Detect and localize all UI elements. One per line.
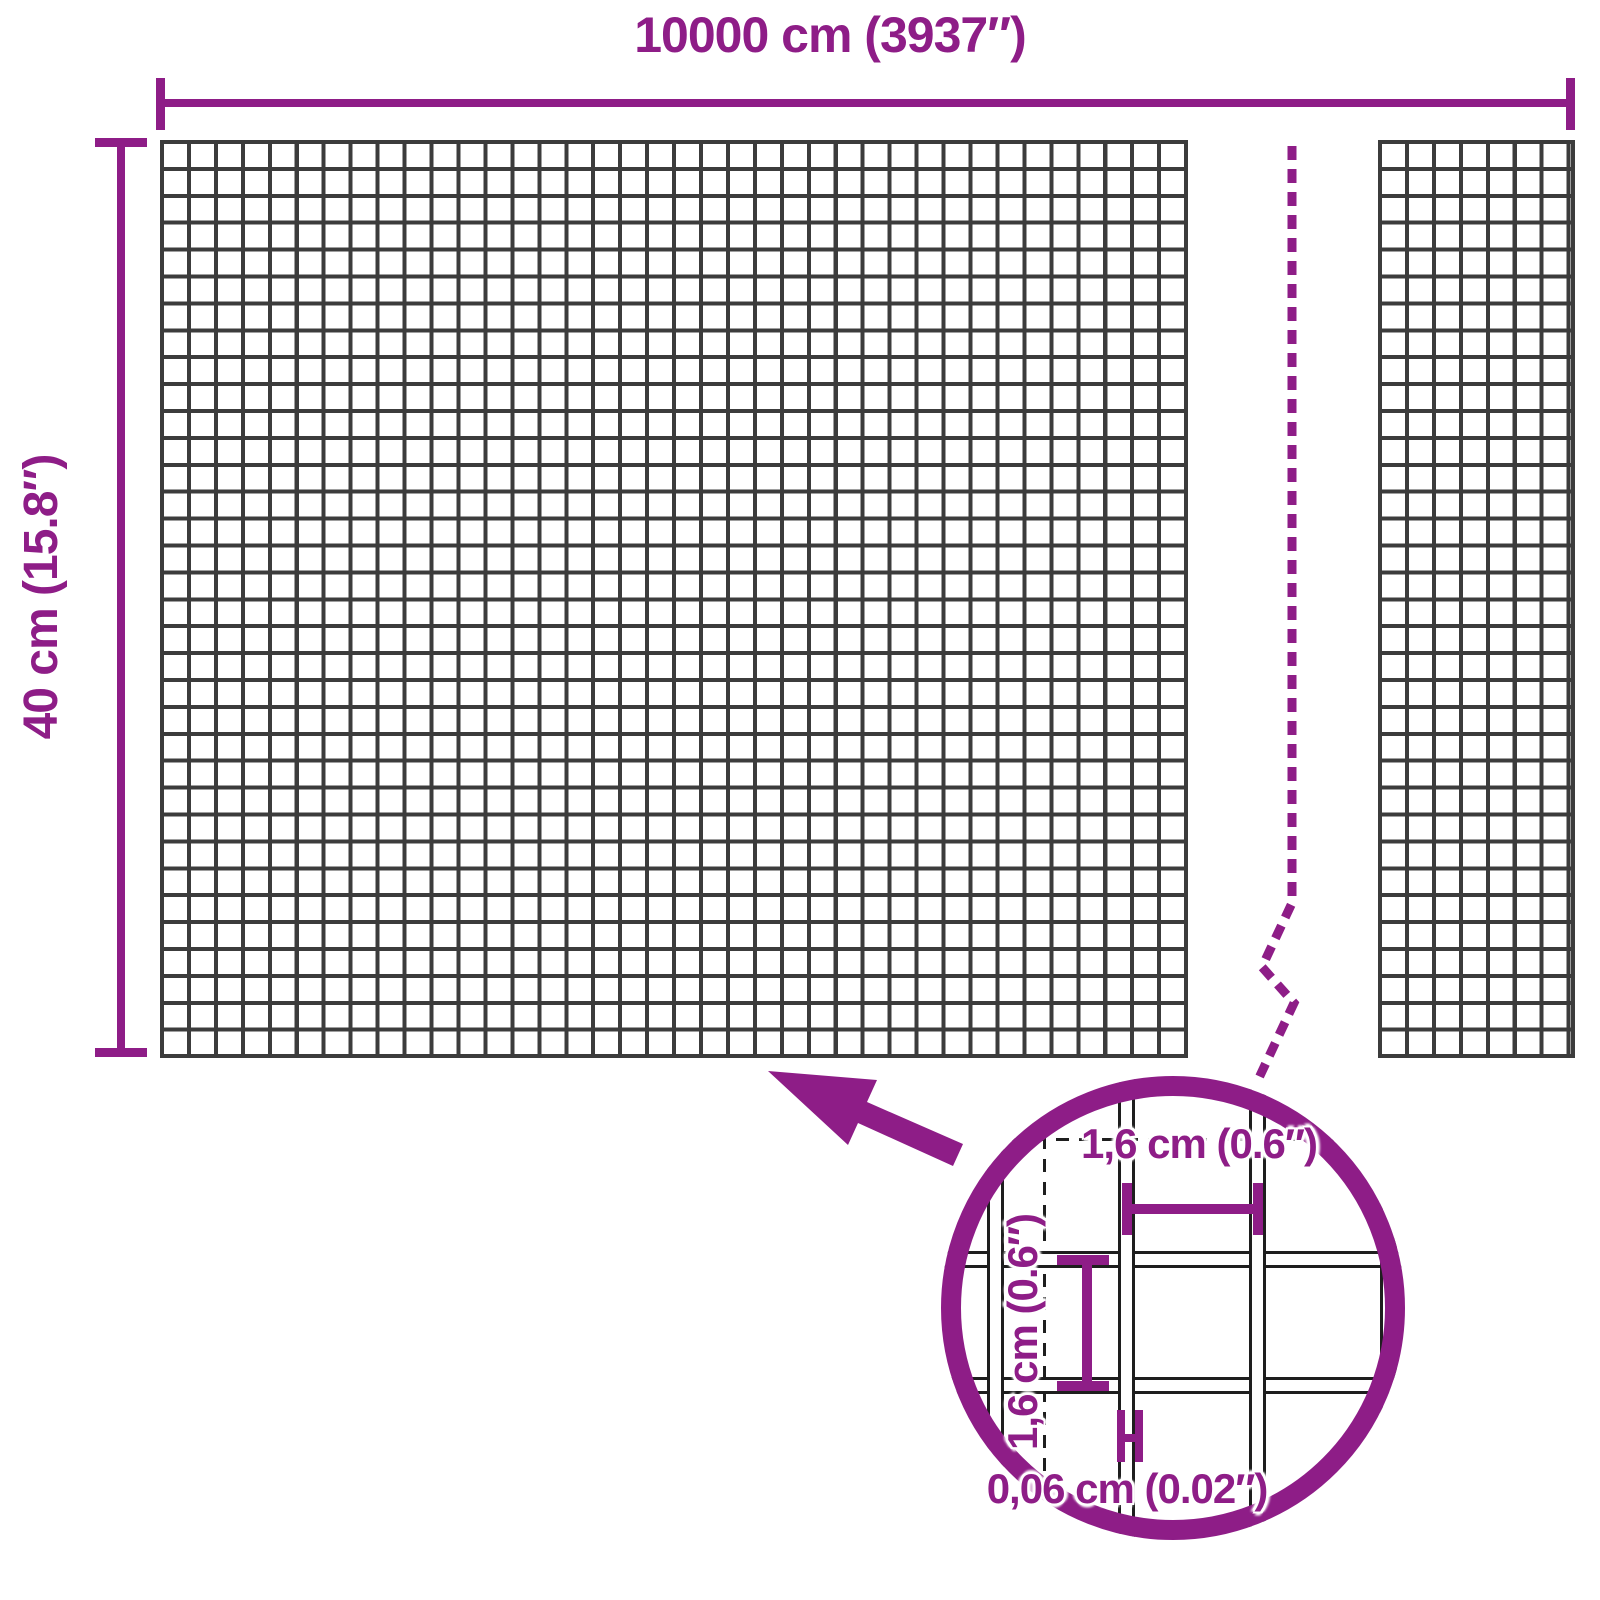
height-dimension-line <box>117 142 125 1053</box>
width-dimension-line <box>160 99 1571 107</box>
mesh-panel-main <box>160 140 1188 1058</box>
height-dimension-cap-top <box>95 138 147 147</box>
width-dimension-tick-right <box>1566 78 1575 130</box>
width-dimension-tick-left <box>156 78 165 130</box>
height-dimension-cap-bottom <box>95 1048 147 1057</box>
zoom-arrow-icon <box>768 1071 963 1166</box>
height-dimension-label: 40 cm (15.8″) <box>18 455 66 740</box>
mesh-height-label: 1,6 cm (0.6″) <box>1002 1214 1044 1450</box>
break-dashed-line <box>1258 146 1294 1080</box>
width-dimension-label: 10000 cm (3937″) <box>634 10 1026 60</box>
wire-mesh-dimension-diagram: 10000 cm (3937″) 40 cm (15.8″) <box>0 0 1600 1600</box>
wire-thickness-label: 0,06 cm (0.02″) <box>987 1468 1268 1510</box>
mesh-width-label: 1,6 cm (0.6″) <box>1081 1123 1317 1165</box>
mesh-panel-right <box>1378 140 1575 1058</box>
